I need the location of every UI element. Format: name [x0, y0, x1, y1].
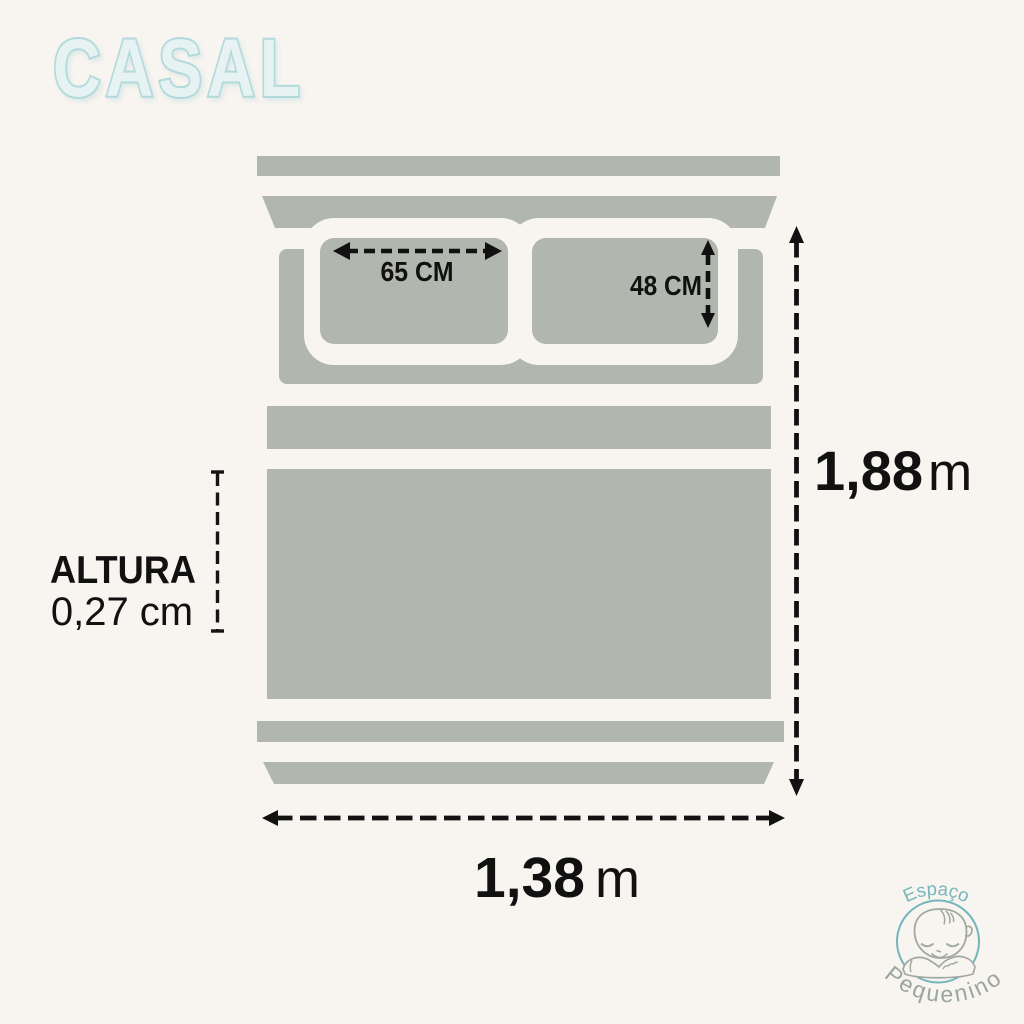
svg-text:1,38m: 1,38m — [474, 846, 640, 910]
svg-text:1,88m: 1,88m — [814, 439, 972, 502]
svg-text:CASAL: CASAL — [53, 23, 305, 114]
svg-text:48 CM: 48 CM — [630, 270, 702, 301]
svg-text:0,27 cm: 0,27 cm — [51, 590, 193, 634]
svg-text:65 CM: 65 CM — [381, 256, 454, 287]
svg-text:ALTURA: ALTURA — [50, 549, 196, 592]
